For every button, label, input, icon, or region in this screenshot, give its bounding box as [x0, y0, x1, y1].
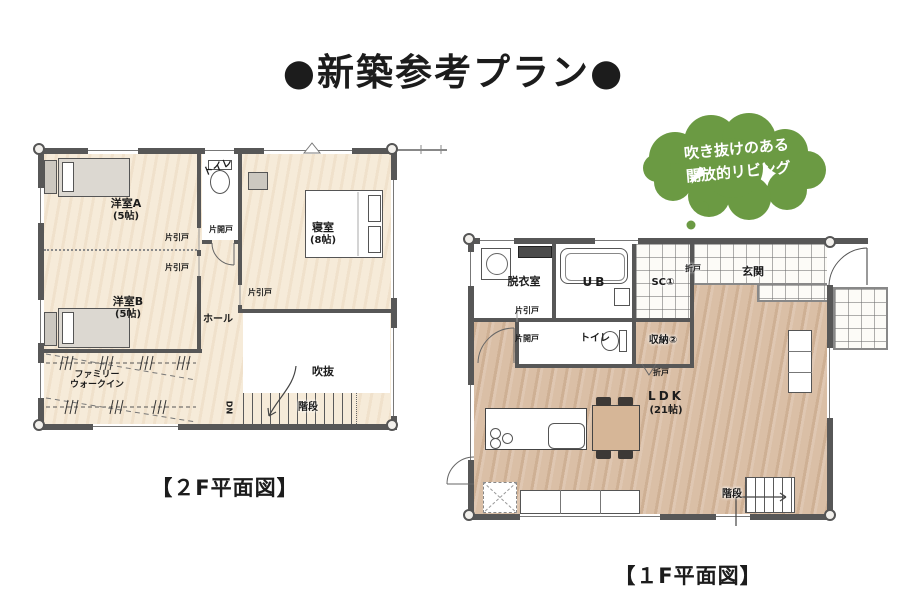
- window-2f-top-roomA: [88, 148, 138, 154]
- partition-roomA-roomB-dotted: [44, 249, 197, 251]
- dining-table: [592, 405, 640, 451]
- cabinet-divider: [560, 490, 561, 514]
- window-1f-bottom-small: [716, 514, 750, 520]
- washbasin-counter: [518, 246, 552, 258]
- pillow: [368, 195, 381, 222]
- corner-marker: [33, 143, 45, 155]
- page-title: ●新築参考プラン●: [0, 42, 907, 96]
- corner-marker: [463, 509, 475, 521]
- door-sliding-2-label: 片引戸: [160, 264, 194, 273]
- window-2f-top-bedroom: [264, 148, 352, 154]
- room-a-label: 洋室A (5帖): [88, 198, 164, 223]
- corner-marker: [386, 143, 398, 155]
- void-floor: [243, 313, 390, 393]
- door-hinged-2f-label: 片開戸: [204, 226, 238, 235]
- hall-label: ホール: [194, 314, 242, 325]
- nightstand: [44, 160, 57, 194]
- room-b-label: 洋室B (5帖): [90, 296, 166, 321]
- storage-label: 収納②: [634, 335, 692, 346]
- low-cabinet: [520, 490, 640, 514]
- floor-plan-sheet: ●新築参考プラン●: [0, 0, 907, 605]
- floor-plan-2f: 洋室A (5帖) 洋室B (5帖) 寝室 (8帖) ファミリー ウォークイン ホ…: [38, 148, 397, 430]
- window-2f-right-void: [391, 328, 397, 416]
- pillow: [368, 226, 381, 253]
- washing-machine-drum-icon: [486, 253, 508, 275]
- door-sliding-3-label: 片引戸: [243, 289, 277, 298]
- wall-toilet-2f-bottom-a: [202, 240, 212, 244]
- wall-roomAB-stub: [197, 250, 201, 256]
- stove-burner-icon: [502, 433, 513, 444]
- caption-1f: 【１F平面図】: [588, 560, 788, 590]
- walkin-line1: ファミリー: [74, 370, 119, 380]
- shoe-closet-label: SC①: [638, 277, 688, 288]
- corner-marker: [33, 419, 45, 431]
- door-sliding-1f-label: 片引戸: [510, 307, 544, 316]
- walkin-line2: ウォークイン: [70, 380, 124, 390]
- kitchen-sink: [548, 423, 585, 449]
- wall-2f-bottom: [38, 424, 397, 430]
- entrance-tile-step: [757, 285, 827, 302]
- toilet-1f-label: トイレ: [570, 333, 620, 344]
- appliance-space: [483, 482, 517, 513]
- nightstand: [248, 172, 268, 190]
- void-label: 吹抜: [293, 366, 353, 378]
- bedroom-name: 寝室: [312, 221, 334, 234]
- walkin-label: ファミリー ウォークイン: [52, 370, 142, 390]
- wall-1f-mid-h1: [474, 318, 694, 322]
- corner-marker: [463, 233, 475, 245]
- nightstand: [44, 312, 57, 346]
- stairs-1f: [745, 477, 795, 513]
- bath-counter: [614, 288, 630, 306]
- bedroom-label: 寝室 (8帖): [293, 222, 353, 247]
- door-folding-2-label: 折戸: [648, 369, 674, 378]
- window-1f-top-ub: [595, 238, 638, 244]
- window-1f-right-living: [827, 348, 833, 418]
- window-2f-bottom-walkin: [93, 424, 178, 430]
- caption-2f: 【２F平面図】: [120, 472, 330, 502]
- room-a-name: 洋室A: [111, 197, 142, 210]
- tv-board: [788, 330, 812, 393]
- pillow: [62, 312, 74, 344]
- tv-board-divider: [788, 372, 812, 373]
- wall-bedroom-left-upper: [238, 154, 242, 285]
- pillow: [62, 162, 74, 192]
- wall-toilet-2f-bottom-b: [234, 240, 242, 244]
- ldk-size: (21帖): [649, 405, 682, 416]
- dining-chair: [596, 397, 611, 406]
- void-dotted-edge: [356, 393, 357, 424]
- dimension-line-2f: [397, 149, 447, 151]
- entrance-porch: [833, 287, 888, 350]
- window-1f-left-kitchen: [468, 385, 474, 460]
- unit-bath-label: UB: [570, 276, 620, 289]
- door-folding-1-label: 折戸: [680, 265, 706, 274]
- wall-bedroom-bottom: [238, 309, 397, 313]
- window-1f-top-dressing: [480, 238, 514, 244]
- dining-chair: [618, 397, 633, 406]
- entrance-label: 玄関: [730, 266, 776, 278]
- stairs-2f-label: 階段: [278, 402, 338, 413]
- corner-marker: [386, 419, 398, 431]
- stairs-down-label: DN: [224, 397, 233, 417]
- dining-chair: [596, 450, 611, 459]
- dressing-room-label: 脱衣室: [492, 276, 556, 288]
- cabinet-divider: [600, 490, 601, 514]
- thought-bubble: 吹き抜けのある 開放的リビング: [633, 112, 843, 240]
- room-b-name: 洋室B: [113, 295, 143, 308]
- toilet-1f-tank: [619, 330, 627, 352]
- ldk-name: LDK: [648, 389, 684, 403]
- dining-chair: [618, 450, 633, 459]
- wall-roomA-right: [197, 154, 201, 228]
- bedroom-size: (8帖): [310, 235, 336, 246]
- room-a-size: (5帖): [113, 211, 139, 222]
- wall-walkin-top: [38, 349, 202, 353]
- wall-ub-sc: [632, 244, 636, 318]
- window-1f-bottom-ldk: [520, 514, 660, 520]
- tv-board-divider: [788, 351, 812, 352]
- stairs-1f-label: 階段: [712, 489, 752, 500]
- room-b-size: (5帖): [115, 309, 141, 320]
- window-1f-left-dressing: [468, 252, 474, 286]
- door-hinged-1f-label: 片開戸: [510, 335, 544, 344]
- wall-sc-entrance: [690, 244, 694, 368]
- window-2f-left-walkin: [38, 363, 44, 398]
- stove-burner-icon: [490, 438, 501, 449]
- door-sliding-1-label: 片引戸: [160, 234, 194, 243]
- window-2f-right-bedroom: [391, 180, 397, 298]
- window-2f-top-toilet: [205, 148, 234, 154]
- ldk-label: LDK (21帖): [634, 390, 698, 417]
- floor-plan-1f: 脱衣室 UB SC① 玄関 トイレ 収納② LDK (21帖) 階段 片引戸 片…: [468, 238, 833, 520]
- corner-marker: [824, 509, 836, 521]
